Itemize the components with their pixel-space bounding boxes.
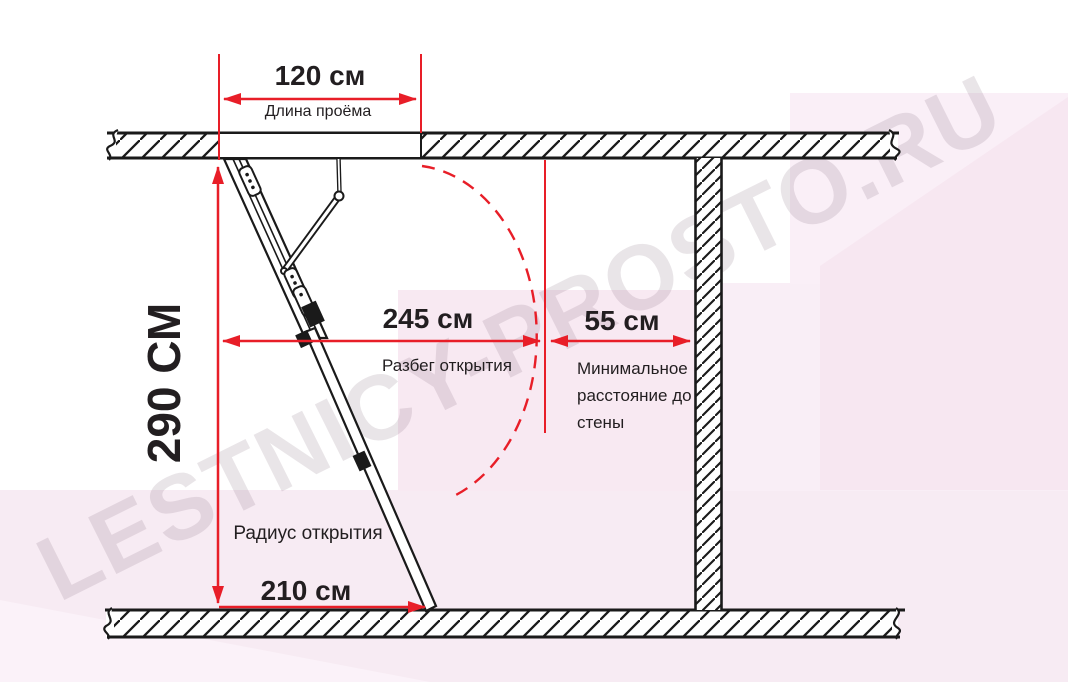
opening-run-label: Разбег открытия xyxy=(357,356,537,376)
ladder-spring-rod xyxy=(339,158,340,194)
opening-length-label: Длина проёма xyxy=(238,103,398,121)
attic-ladder-dimension-diagram: LESTNICY-PROSTO.RU xyxy=(0,0,1068,682)
ceiling-height-value: 290 СМ xyxy=(140,273,188,493)
floor-beam xyxy=(104,608,905,639)
opening-radius-label: Радиус открытия xyxy=(218,523,398,545)
ceiling-opening xyxy=(219,133,421,158)
opening-length-value: 120 см xyxy=(240,61,400,91)
wall-clearance-label: Минимальное расстояние до стены xyxy=(577,355,709,436)
wall-clearance-value: 55 см xyxy=(542,306,702,336)
opening-radius-value: 210 см xyxy=(226,576,386,606)
ceiling-beam xyxy=(107,130,900,160)
dimension-run-245 xyxy=(223,160,545,433)
opening-run-value: 245 см xyxy=(348,304,508,334)
